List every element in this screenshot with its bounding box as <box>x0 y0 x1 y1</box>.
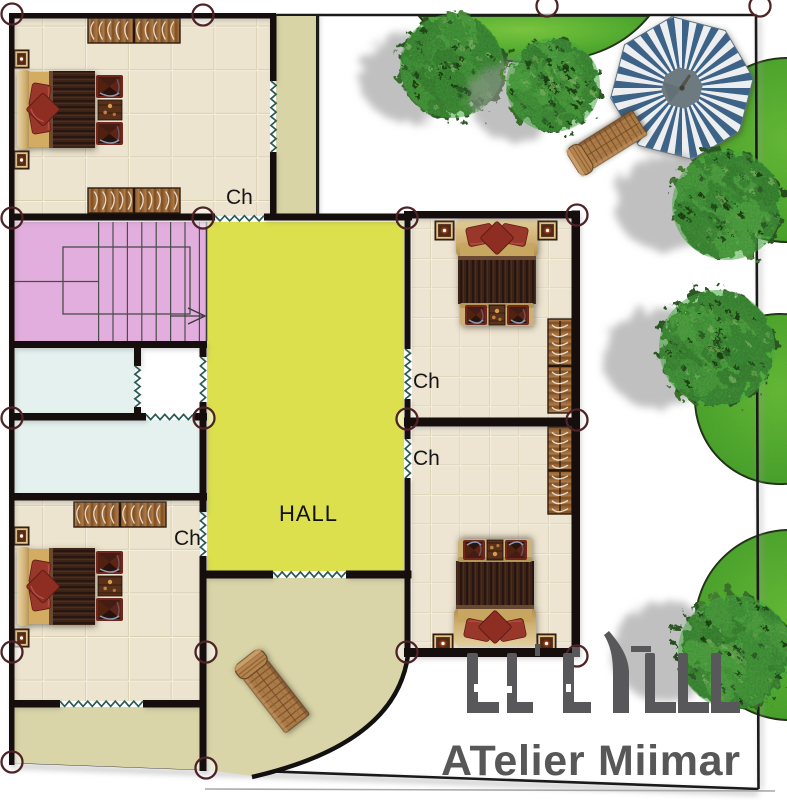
svg-text:HALL: HALL <box>279 501 338 526</box>
svg-text:Ch: Ch <box>413 447 440 470</box>
svg-text:ATelier Miimar: ATelier Miimar <box>441 737 741 785</box>
svg-text:Ch: Ch <box>413 370 440 393</box>
svg-text:Ch: Ch <box>226 186 253 209</box>
svg-text:Ch: Ch <box>174 527 201 550</box>
